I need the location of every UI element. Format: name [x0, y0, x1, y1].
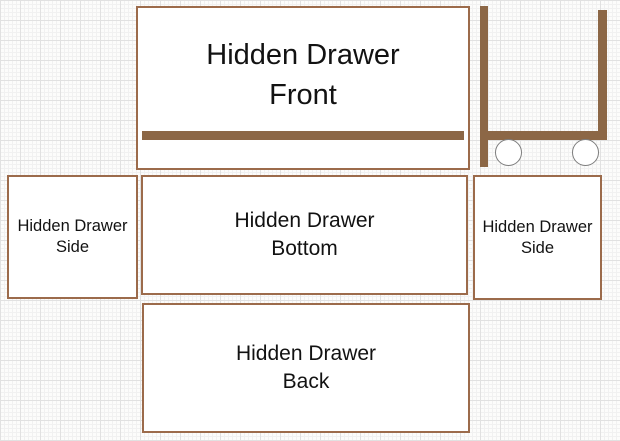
wheel-circle-right	[572, 139, 599, 166]
side-panel-right: Hidden Drawer Side	[473, 175, 602, 300]
side-panel-left: Hidden Drawer Side	[7, 175, 138, 299]
front-panel-label: Hidden Drawer Front	[206, 35, 399, 115]
bottom-panel-label: Hidden Drawer Bottom	[234, 207, 374, 263]
side-panel-left-label: Hidden Drawer Side	[17, 216, 127, 258]
front-panel-label-line1: Hidden Drawer	[206, 35, 399, 75]
back-panel-label-line2: Back	[236, 368, 376, 396]
side-panel-right-label: Hidden Drawer Side	[482, 217, 592, 259]
bottom-panel-label-line2: Bottom	[234, 235, 374, 263]
side-panel-right-label-line1: Hidden Drawer	[482, 217, 592, 238]
profile-back-board	[598, 10, 607, 140]
side-panel-right-label-line2: Side	[482, 238, 592, 259]
profile-front-board	[480, 6, 488, 167]
front-panel-label-line2: Front	[206, 75, 399, 115]
front-panel: Hidden Drawer Front	[136, 6, 470, 170]
wheel-circle-left	[495, 139, 522, 166]
bottom-panel-label-line1: Hidden Drawer	[234, 207, 374, 235]
back-panel-label: Hidden Drawer Back	[236, 340, 376, 396]
back-panel-label-line1: Hidden Drawer	[236, 340, 376, 368]
drawer-plan-canvas: Hidden Drawer Front Hidden Drawer Side H…	[0, 0, 620, 441]
back-panel: Hidden Drawer Back	[142, 303, 470, 433]
front-groove-bar	[142, 131, 464, 140]
bottom-panel: Hidden Drawer Bottom	[141, 175, 468, 295]
side-panel-left-label-line1: Hidden Drawer	[17, 216, 127, 237]
side-panel-left-label-line2: Side	[17, 237, 127, 258]
